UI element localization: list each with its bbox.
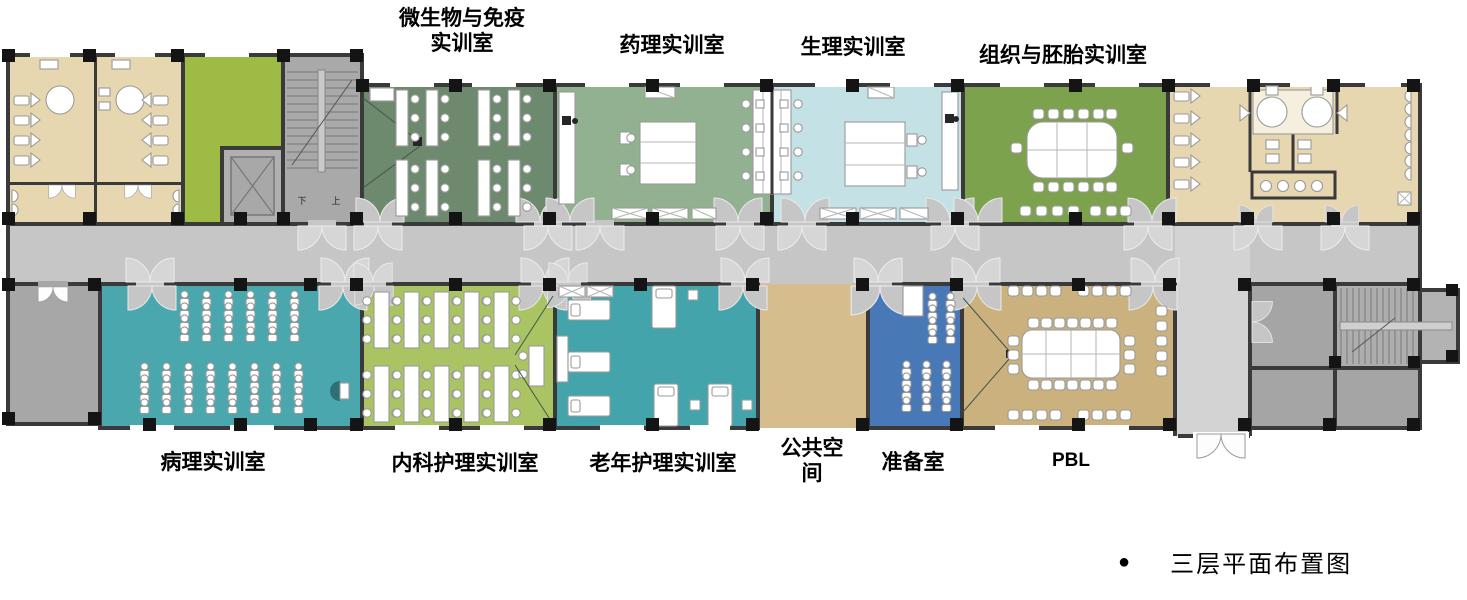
elevator (222, 148, 283, 224)
room-gray-left (8, 284, 100, 424)
label-public-space: 公共空间 (775, 436, 849, 486)
legend-title: 三层平面布置图 (1170, 544, 1352, 579)
label-pathology: 病理实训室 (161, 450, 266, 475)
label-physiology: 生理实训室 (801, 35, 906, 60)
stair-down-label: 下 (297, 194, 306, 207)
entry-lobby (1175, 224, 1250, 436)
legend-bullet-icon: ● (1118, 548, 1130, 576)
label-pbl: PBL (1052, 450, 1090, 472)
floor-plan-page: 微生物与免疫实训室 药理实训室 生理实训室 组织与胚胎实训室 病理实训室 内科护… (0, 0, 1467, 600)
label-prep-room: 准备室 (882, 450, 945, 475)
label-histology: 组织与胚胎实训室 (979, 43, 1147, 68)
label-internal-nursing: 内科护理实训室 (392, 451, 539, 476)
floor-plan-svg (0, 0, 1467, 600)
label-geriatric-nursing: 老年护理实训室 (590, 451, 737, 476)
stair-up-label: 上 (331, 194, 340, 207)
label-pharmacology: 药理实训室 (620, 33, 725, 58)
label-microbiology: 微生物与免疫实训室 (395, 6, 529, 56)
room-c (1250, 368, 1335, 428)
legend: ● 三层平面布置图 (1118, 544, 1352, 579)
entrance-doors (1193, 432, 1249, 458)
